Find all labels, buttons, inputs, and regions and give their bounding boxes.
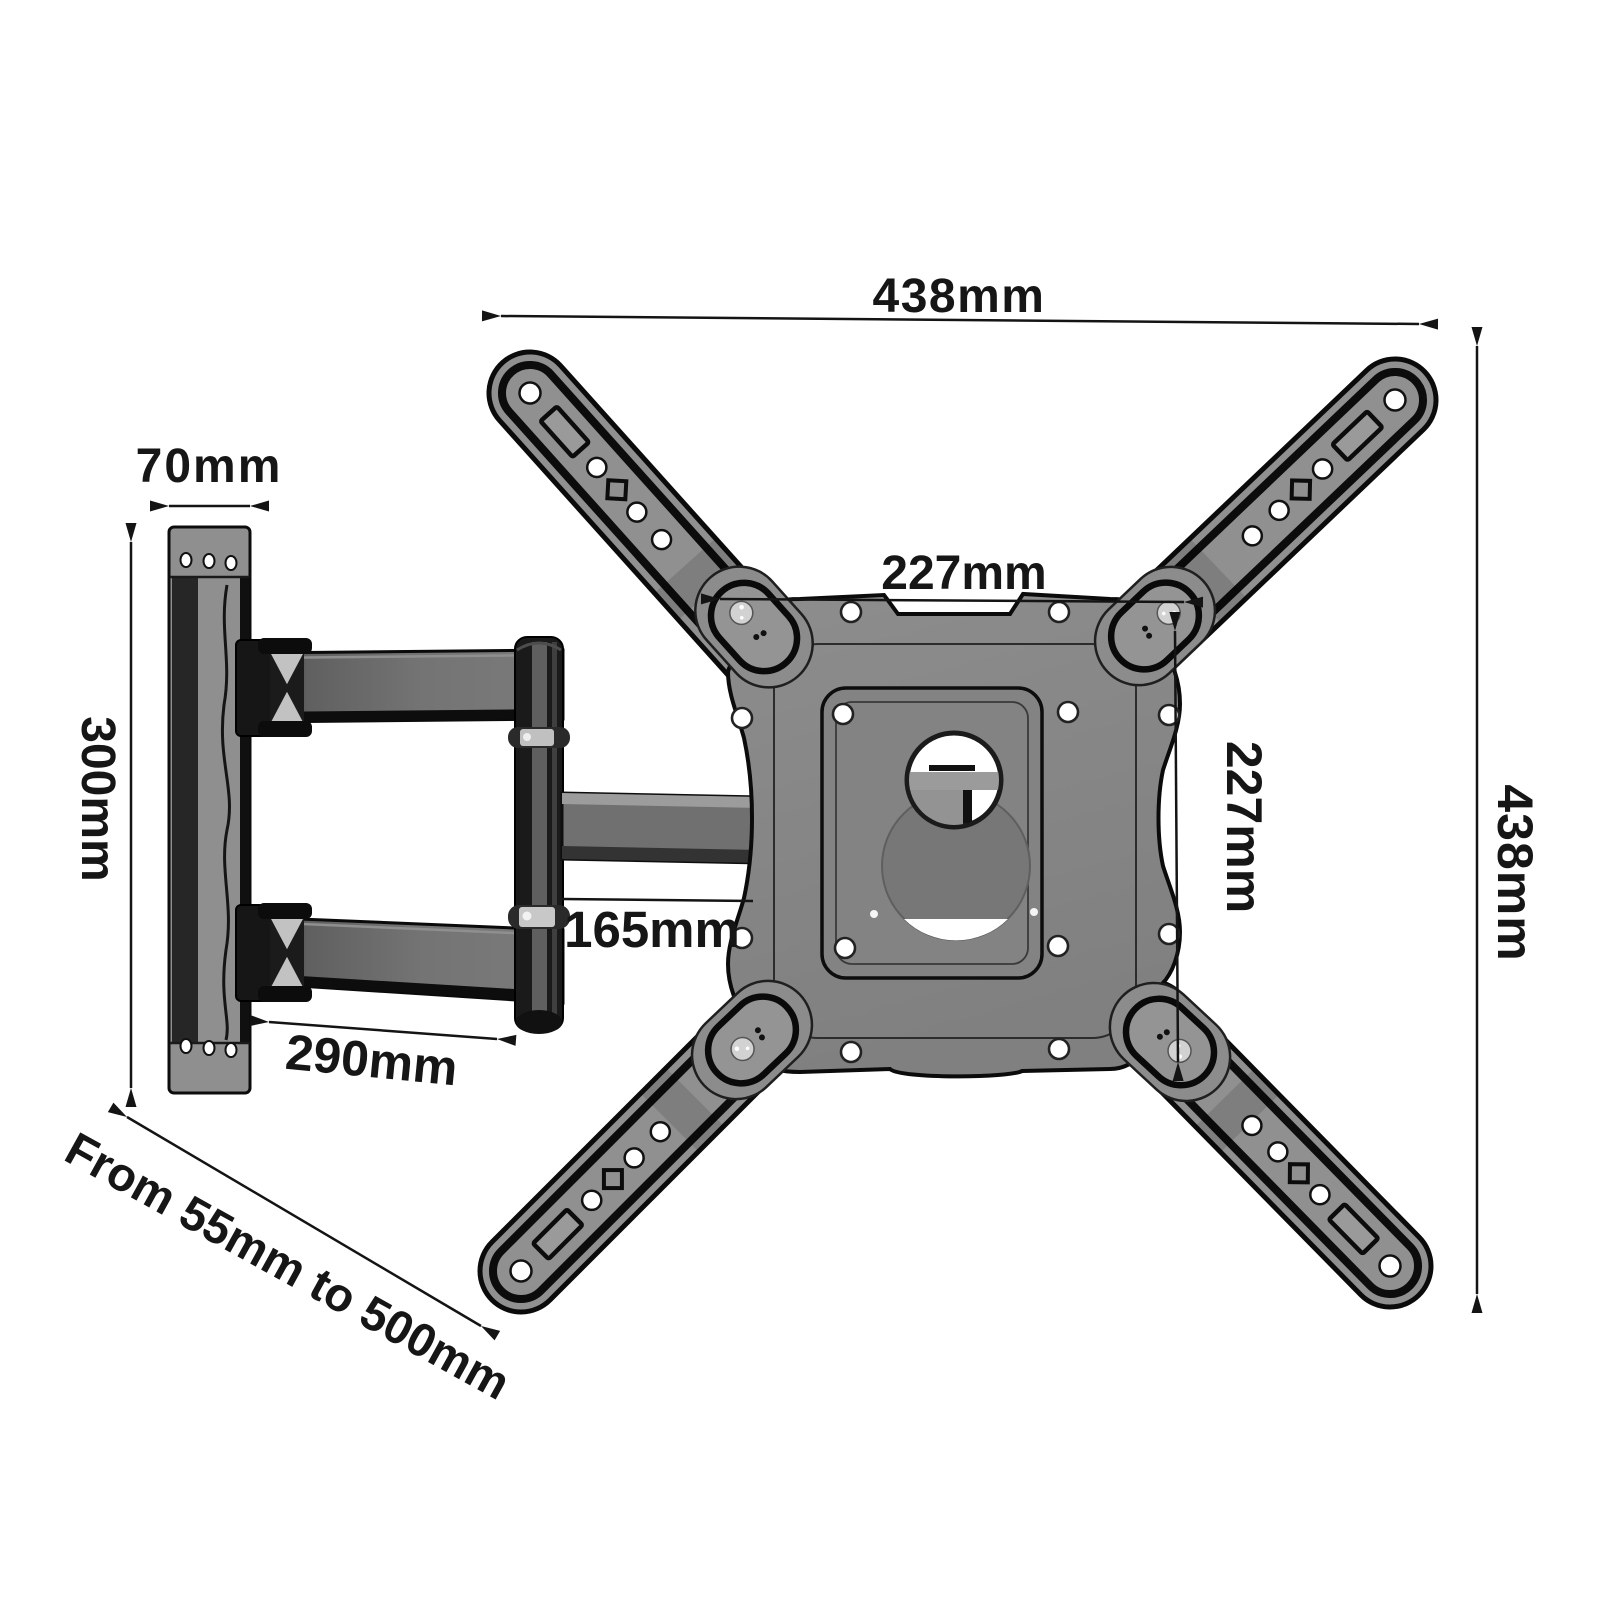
svg-text:70mm: 70mm — [136, 440, 283, 493]
svg-text:From 55mm to 500mm: From 55mm to 500mm — [57, 1121, 519, 1409]
svg-text:227mm: 227mm — [1216, 741, 1272, 913]
svg-text:300mm: 300mm — [71, 716, 124, 881]
svg-text:165mm: 165mm — [564, 901, 740, 958]
svg-text:227mm: 227mm — [881, 547, 1046, 600]
svg-text:438mm: 438mm — [873, 270, 1046, 323]
svg-text:438mm: 438mm — [1487, 784, 1543, 961]
